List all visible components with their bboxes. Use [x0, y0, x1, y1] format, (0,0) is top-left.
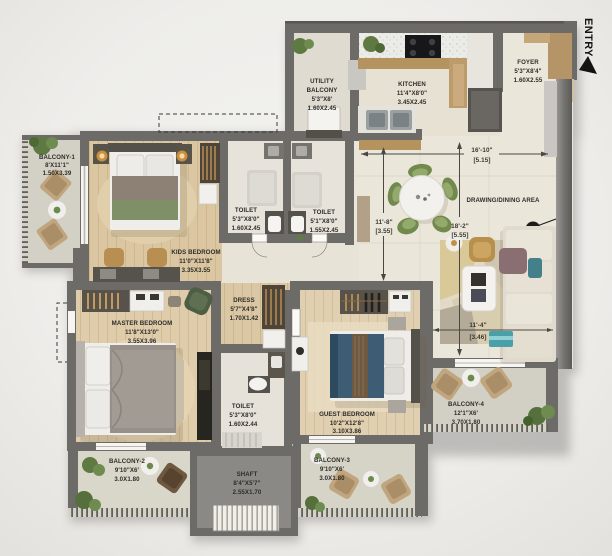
svg-text:8'4"X5'7": 8'4"X5'7"	[233, 480, 260, 487]
svg-text:12'1"X6': 12'1"X6'	[454, 410, 479, 417]
svg-text:11'-4": 11'-4"	[469, 322, 486, 329]
svg-text:3.35X3.55: 3.35X3.55	[182, 267, 211, 274]
svg-text:1.55X2.45: 1.55X2.45	[310, 227, 339, 234]
svg-text:18'-2": 18'-2"	[451, 223, 469, 230]
svg-text:5'3"X8': 5'3"X8'	[312, 96, 333, 103]
svg-text:3.70X1.80: 3.70X1.80	[452, 419, 481, 426]
svg-text:11'0"X11'8": 11'0"X11'8"	[179, 258, 213, 265]
svg-text:9'10"X6': 9'10"X6'	[320, 466, 345, 473]
svg-text:1.50X3.39: 1.50X3.39	[43, 170, 72, 177]
svg-text:11'-8": 11'-8"	[375, 219, 392, 226]
svg-text:2.55X1.70: 2.55X1.70	[233, 489, 262, 496]
svg-text:BALCONY: BALCONY	[307, 87, 338, 94]
svg-text:8'X11'1": 8'X11'1"	[45, 162, 69, 169]
svg-text:3.0X1.80: 3.0X1.80	[114, 476, 140, 483]
svg-text:[5.15]: [5.15]	[473, 157, 490, 164]
svg-text:3.55X3.96: 3.55X3.96	[128, 338, 157, 345]
svg-text:TOILET: TOILET	[313, 209, 335, 216]
svg-text:[3.55]: [3.55]	[375, 228, 392, 235]
svg-text:10'2"X12'8": 10'2"X12'8"	[330, 420, 364, 427]
svg-text:MASTER BEDROOM: MASTER BEDROOM	[112, 320, 173, 327]
svg-text:FOYER: FOYER	[517, 59, 539, 66]
svg-text:3.0X1.80: 3.0X1.80	[319, 475, 345, 482]
svg-text:TOILET: TOILET	[232, 403, 254, 410]
svg-text:5'7"X4'8": 5'7"X4'8"	[230, 306, 257, 313]
svg-text:KIDS BEDROOM: KIDS BEDROOM	[171, 249, 220, 256]
svg-text:UTILITY: UTILITY	[310, 78, 334, 85]
svg-text:BALCONY-3: BALCONY-3	[314, 457, 351, 464]
svg-text:ENTRY: ENTRY	[582, 18, 594, 57]
svg-text:BALCONY-2: BALCONY-2	[109, 458, 146, 465]
svg-text:1.60X2.45: 1.60X2.45	[232, 225, 261, 232]
svg-text:[5.55]: [5.55]	[451, 232, 468, 239]
svg-text:5'3"X8'4": 5'3"X8'4"	[514, 68, 541, 75]
svg-text:[3.46]: [3.46]	[469, 334, 486, 341]
svg-text:11'8"X13'0": 11'8"X13'0"	[125, 329, 159, 336]
svg-text:1.60X2.45: 1.60X2.45	[308, 105, 337, 112]
svg-text:GUEST BEDROOM: GUEST BEDROOM	[319, 411, 375, 418]
svg-text:BALCONY-4: BALCONY-4	[448, 401, 485, 408]
svg-text:DRESS: DRESS	[233, 297, 255, 304]
svg-text:BALCONY-1: BALCONY-1	[39, 154, 76, 161]
svg-text:5'1"X8'0": 5'1"X8'0"	[310, 218, 337, 225]
svg-text:1.60X2.55: 1.60X2.55	[514, 77, 543, 84]
svg-text:9'10"X6': 9'10"X6'	[115, 467, 140, 474]
svg-text:1.70X1.42: 1.70X1.42	[230, 315, 259, 322]
svg-text:SHAFT: SHAFT	[237, 471, 258, 478]
svg-text:11'4"X8'0": 11'4"X8'0"	[397, 90, 427, 97]
svg-text:5'3"X8'0": 5'3"X8'0"	[229, 412, 256, 419]
svg-text:KITCHEN: KITCHEN	[398, 81, 426, 88]
svg-text:1.60X2.44: 1.60X2.44	[229, 421, 258, 428]
svg-text:TOILET: TOILET	[235, 207, 257, 214]
svg-text:16'-10": 16'-10"	[471, 147, 492, 154]
svg-text:3.45X2.45: 3.45X2.45	[398, 99, 427, 106]
svg-text:DRAWING/DINING AREA: DRAWING/DINING AREA	[466, 197, 540, 204]
svg-text:5'3"X8'0": 5'3"X8'0"	[232, 216, 259, 223]
svg-text:3.10X3.86: 3.10X3.86	[333, 428, 362, 435]
